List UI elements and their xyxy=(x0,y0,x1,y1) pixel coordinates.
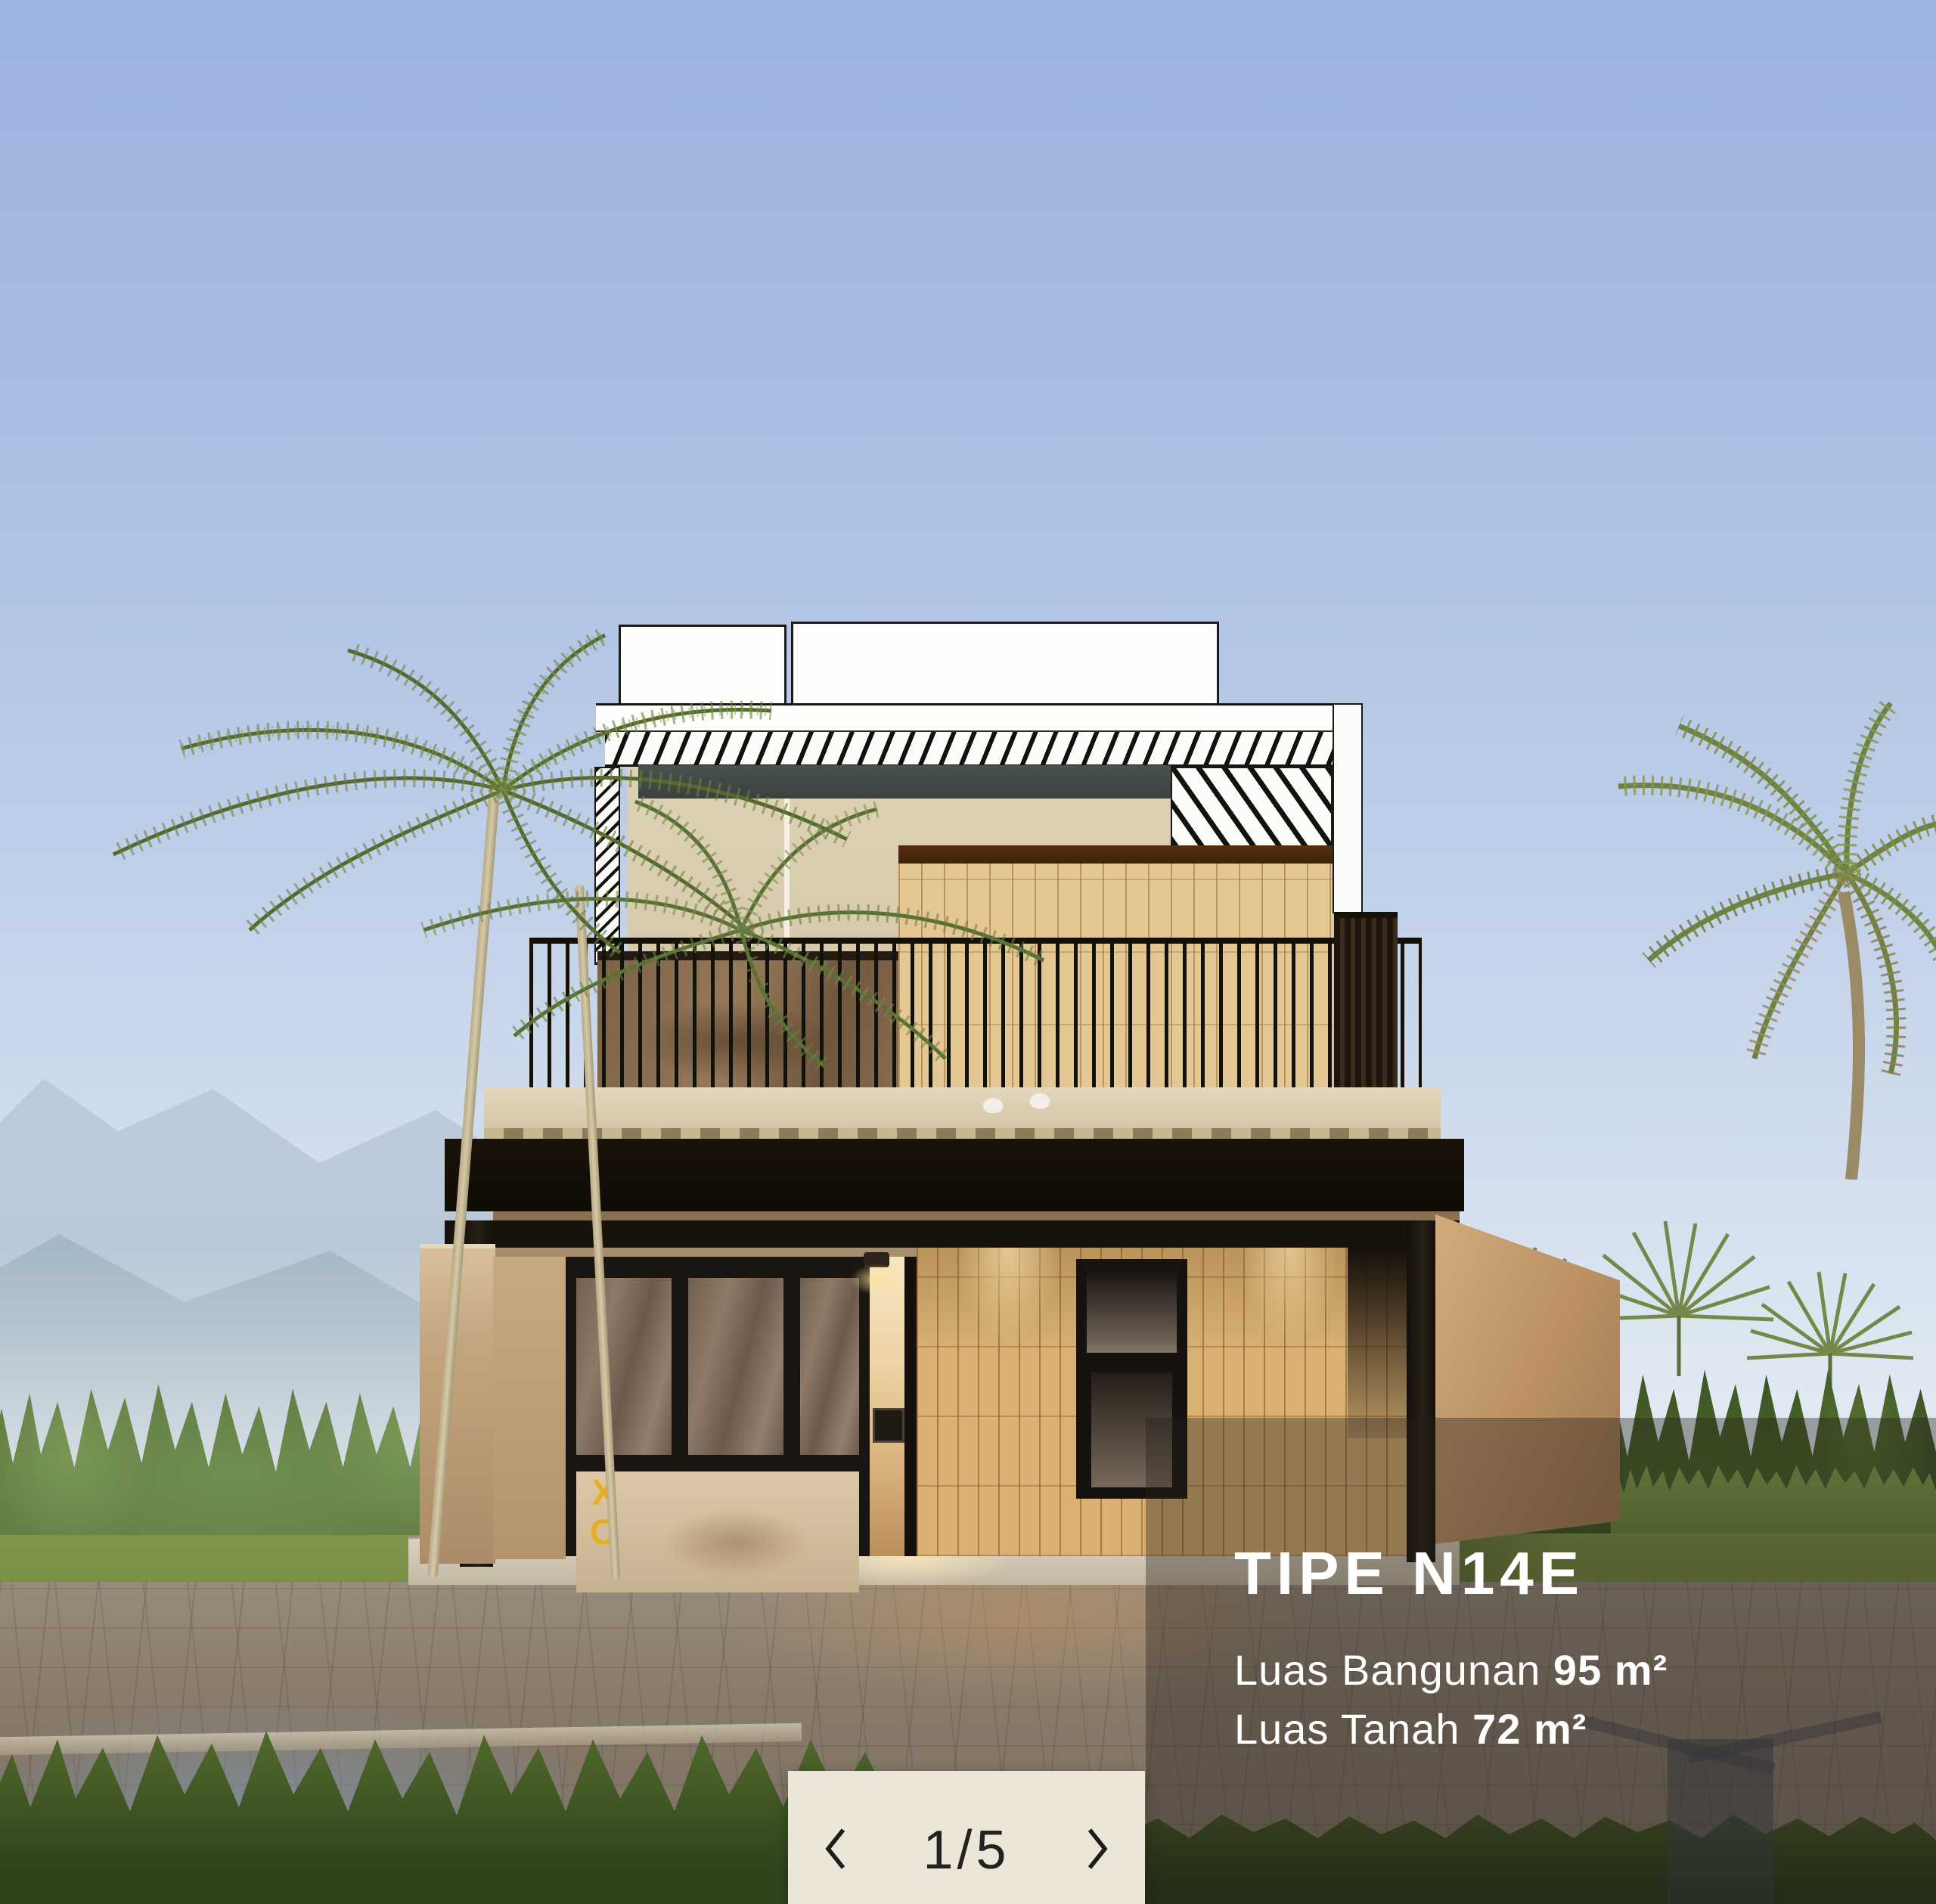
overlay-title: TIPE N14E xyxy=(1234,1539,1584,1608)
glass-pane-1 xyxy=(576,1278,672,1455)
tile-wall-dark-panel xyxy=(1348,1248,1407,1438)
glass-logo: X O xyxy=(581,1473,626,1556)
bird-1 xyxy=(983,1098,1003,1113)
balcony-railing-side-panel xyxy=(1334,912,1398,1095)
carousel-pagination-bar: 1/5 xyxy=(788,1771,1145,1904)
glass-logo-o: O xyxy=(581,1512,626,1552)
spec-1-value: 95 m² xyxy=(1553,1646,1668,1694)
glass-logo-x: X xyxy=(581,1473,626,1512)
glass-pane-2 xyxy=(688,1278,783,1455)
downlight-cone-1 xyxy=(936,1248,1080,1429)
palm-tree xyxy=(1482,696,1936,1180)
spec-1-label: Luas Bangunan xyxy=(1234,1646,1553,1694)
chevron-right-icon xyxy=(1079,1824,1115,1874)
overlay-spec-line-1: Luas Bangunan 95 m² xyxy=(1234,1641,1668,1700)
fern-tree-canopies xyxy=(0,605,1210,1089)
spec-2-label: Luas Tanah xyxy=(1234,1705,1472,1753)
overlay-spec-line-2: Luas Tanah 72 m² xyxy=(1234,1700,1587,1759)
spec-2-value: 72 m² xyxy=(1472,1705,1587,1753)
fern-canopy-lower xyxy=(423,802,1044,1066)
balcony-dentil-trim xyxy=(484,1128,1441,1139)
interior-microwave xyxy=(873,1408,904,1443)
entry-side-wall-left xyxy=(493,1257,566,1559)
canopy-lamp-glow xyxy=(841,1261,914,1307)
balcony-parapet-band xyxy=(484,1087,1441,1130)
fern-canopy-upper xyxy=(113,635,847,953)
info-overlay-panel: TIPE N14E Luas Bangunan 95 m² Luas Tanah… xyxy=(1146,1418,1936,1904)
window-pane-upper xyxy=(1087,1270,1177,1353)
downlight-cone-2 xyxy=(1218,1248,1361,1429)
roof-corner-column-right xyxy=(1333,703,1363,913)
next-button[interactable] xyxy=(1063,1807,1131,1890)
bird-2 xyxy=(1030,1093,1050,1109)
palm-trunk xyxy=(1844,892,1859,1180)
frosted-tree-shadow xyxy=(611,1484,838,1582)
property-carousel-screenshot: X O xyxy=(0,0,1936,1904)
canopy-gap-soffit xyxy=(493,1211,1460,1220)
